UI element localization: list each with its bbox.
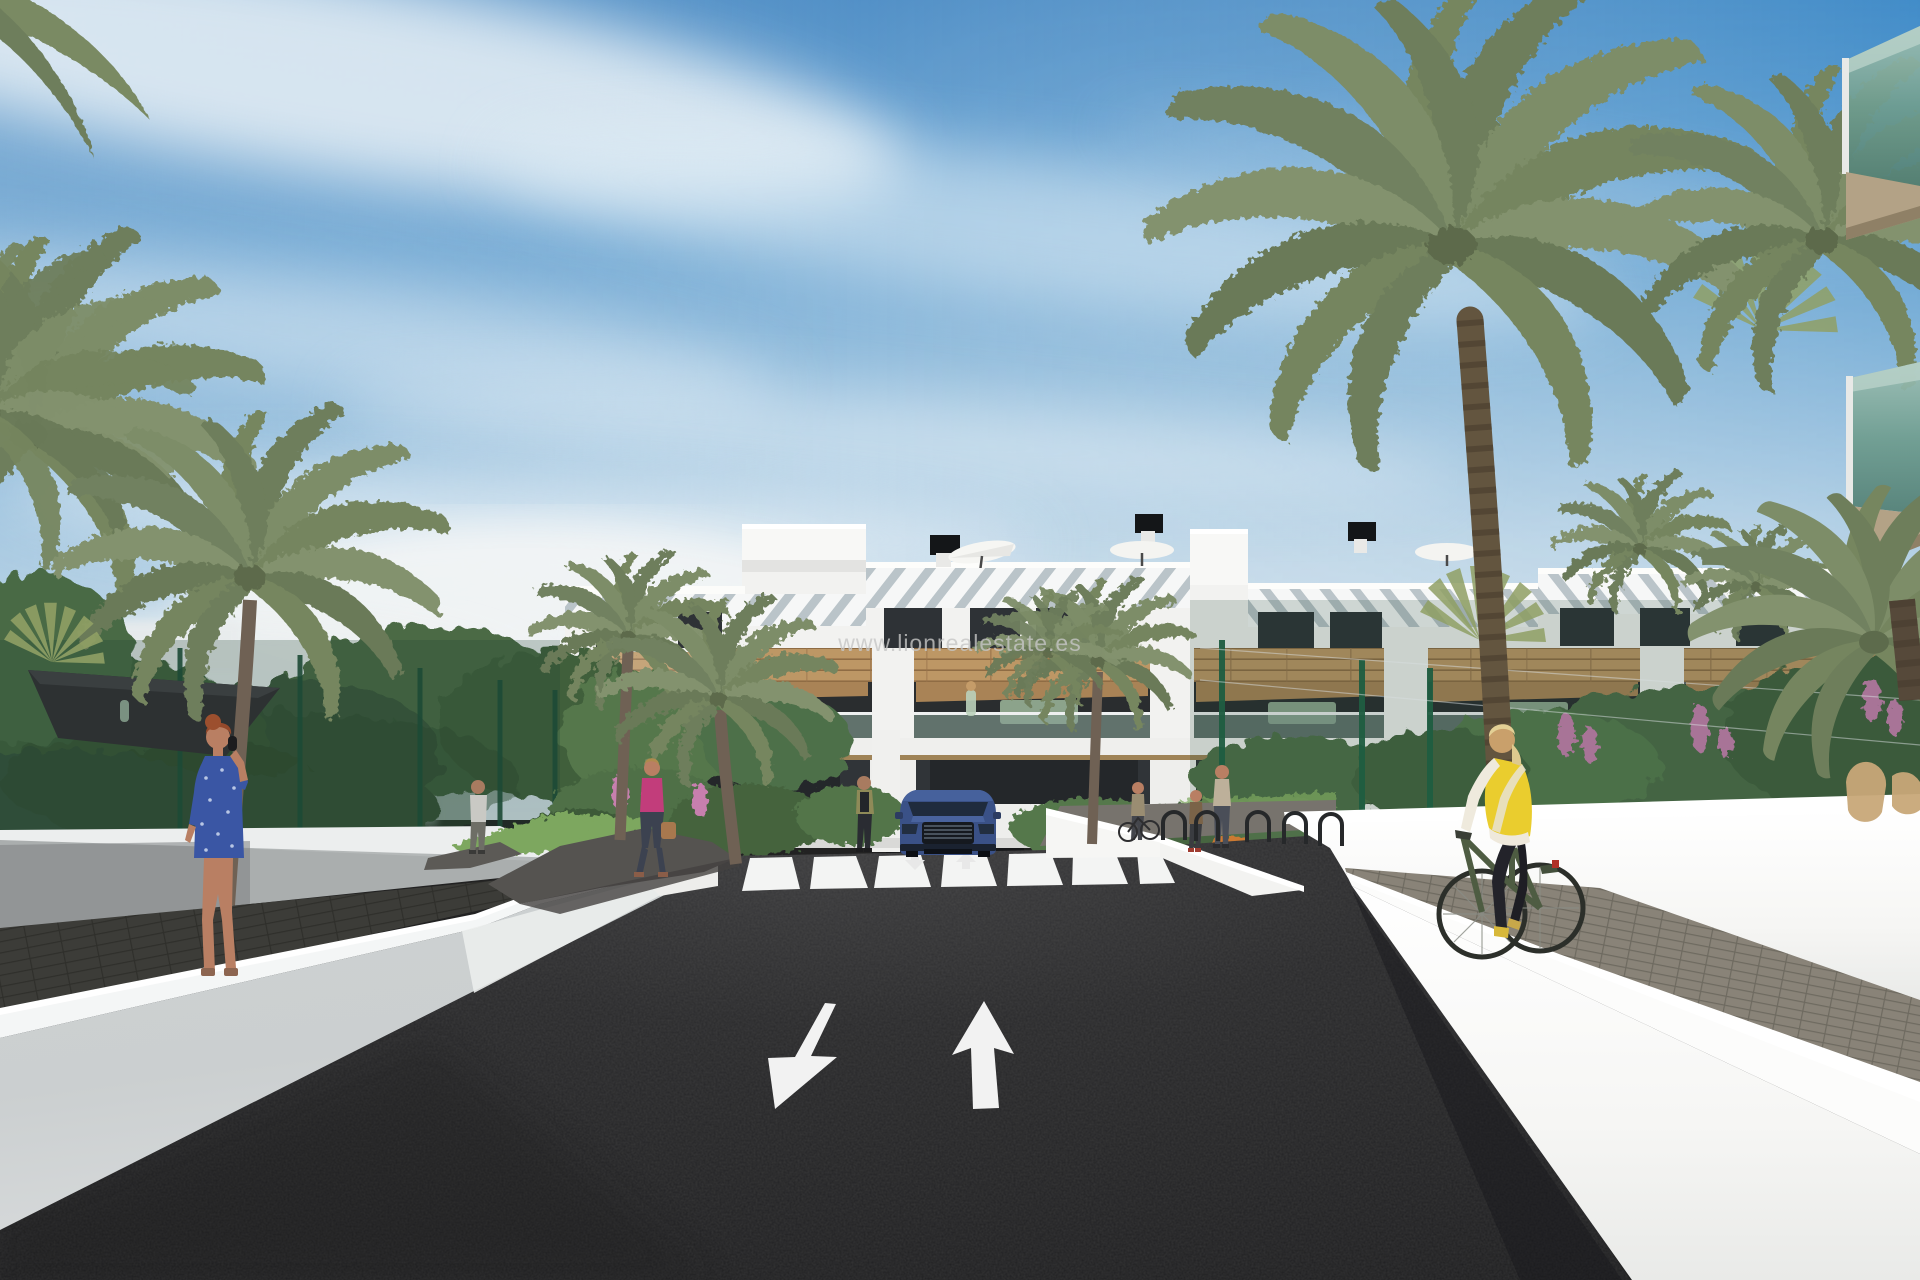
svg-text:www.lionrealestate.es: www.lionrealestate.es <box>837 630 1081 656</box>
